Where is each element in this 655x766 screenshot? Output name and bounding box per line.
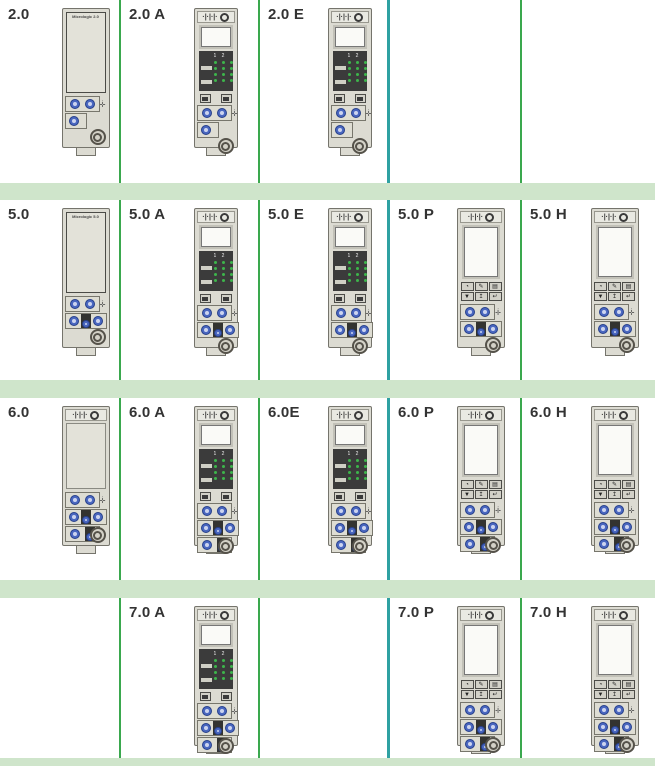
- dial-row-middle: [331, 520, 369, 536]
- dial-row-middle: [197, 520, 235, 536]
- dial-group: [594, 702, 629, 718]
- lamp-test-button: [221, 294, 232, 303]
- led-dot: [230, 79, 233, 82]
- dial-group: [197, 105, 232, 121]
- side-plug-cross: ✛: [629, 311, 635, 317]
- table-cell-5-0-e: 5.0 E·|·|·|·1 2 3·✛: [260, 200, 390, 380]
- mode-switch: [213, 521, 223, 535]
- device-area: ·|·|·|·◔✎▤▼↥↵·✛: [442, 398, 520, 554]
- dial-section: ·✛: [65, 295, 107, 345]
- sensor-ring-icon: [485, 611, 494, 620]
- led-dot: [214, 665, 217, 668]
- mounting-tab: [76, 148, 96, 156]
- control-unit-faceplate: ·|·|·|·1 2 3·✛: [194, 606, 238, 746]
- rotary-dial: [351, 108, 361, 118]
- rotary-dial: [599, 705, 609, 715]
- device-area: ·|·|·|·1 2 3·✛: [312, 200, 387, 356]
- dial-section: ·✛: [65, 95, 107, 145]
- dial-row-middle: [594, 519, 636, 535]
- lcd-screen: [462, 423, 500, 477]
- led-dot: [364, 471, 367, 474]
- side-plug-cross: ✛: [232, 710, 238, 716]
- led-dot: [222, 671, 225, 674]
- control-unit-device: ·|·|·|·1 2 3·✛: [194, 208, 238, 356]
- dial-row-middle: [65, 509, 107, 525]
- device-area: ·|·|·|·◔✎▤▼↥↵·✛: [442, 598, 520, 754]
- lcd-display-area: [598, 425, 632, 475]
- model-label: 5.0 A: [121, 200, 173, 223]
- rotary-dial: [201, 523, 211, 533]
- led-grid: [214, 459, 230, 480]
- led-dot: [214, 279, 217, 282]
- mode-switch: [610, 520, 620, 534]
- rotary-dial: [465, 505, 475, 515]
- mode-switch: [476, 322, 486, 336]
- sensor-ports-glyph: ·|·|·|·: [336, 412, 351, 419]
- rotary-dial: [480, 505, 490, 515]
- dial-section: ·✛: [460, 701, 502, 753]
- led-dot: [356, 267, 359, 270]
- battery-test-button: [200, 692, 211, 701]
- test-button: [90, 129, 106, 145]
- dial-row-top: ·✛: [197, 503, 235, 519]
- table-cell-7-0-a: 7.0 A·|·|·|·1 2 3·✛: [121, 598, 260, 758]
- mode-switch: [476, 520, 486, 534]
- label-chip: [335, 280, 346, 284]
- led-dot: [230, 465, 233, 468]
- test-button: [352, 338, 368, 354]
- rotary-dial: [335, 125, 345, 135]
- nav-button-icon: ▤: [489, 480, 502, 489]
- led-dot: [364, 67, 367, 70]
- selection-table: 2.0Micrologic 2.0·✛2.0 A·|·|·|·1 2 3·✛2.…: [0, 0, 655, 766]
- dial-section: ·✛: [65, 491, 107, 543]
- device-area: ·|·|·|·1 2 3·✛: [173, 200, 258, 356]
- lcd-screen: [333, 423, 367, 447]
- led-dot: [222, 677, 225, 680]
- rotary-dial: [599, 505, 609, 515]
- table-cell-2-0-e: 2.0 E·|·|·|·1 2 3·✛: [260, 0, 390, 183]
- table-cell-empty: [260, 598, 390, 758]
- dial-group: [331, 105, 366, 121]
- rotary-dial: [70, 99, 80, 109]
- dial-row-top: ·✛: [594, 304, 636, 320]
- side-plug-cross: ✛: [232, 312, 238, 318]
- led-dot: [364, 465, 367, 468]
- mode-switch: [213, 323, 223, 337]
- nav-button-icon: ▤: [489, 282, 502, 291]
- table-row: 7.0 A·|·|·|·1 2 3·✛7.0 P·|·|·|·◔✎▤▼↥↵·✛7…: [0, 598, 655, 758]
- device-area: ·|·|·|·1 2 3·✛: [312, 0, 387, 156]
- dial-section: ·✛: [331, 502, 369, 554]
- led-grid: [348, 261, 364, 282]
- rotary-dial: [225, 325, 235, 335]
- rotary-dial: [480, 307, 490, 317]
- led-dot: [356, 79, 359, 82]
- rotary-dial: [82, 516, 90, 524]
- dial-row-middle: [197, 720, 235, 736]
- led-dot: [214, 273, 217, 276]
- dial-group: [197, 503, 232, 519]
- model-label: 5.0 P: [390, 200, 442, 223]
- dial-row-top: ·✛: [594, 702, 636, 718]
- led-dot: [348, 273, 351, 276]
- model-label: 2.0 E: [260, 0, 312, 23]
- table-cell-5-0-a: 5.0 A·|·|·|·1 2 3·✛: [121, 200, 260, 380]
- mode-switch: [81, 314, 91, 328]
- dial-group: [65, 492, 100, 508]
- rotary-dial: [82, 320, 90, 328]
- side-plug-icon: ·✛: [232, 108, 238, 118]
- dial-row-top: ·✛: [65, 296, 107, 312]
- control-unit-device: ·|·|·|·◔✎▤▼↥↵·✛: [591, 606, 639, 754]
- lcd-display-area: [201, 625, 231, 645]
- nav-button-icon: ↥: [608, 490, 621, 499]
- mode-switch: [476, 720, 486, 734]
- rotary-dial: [622, 522, 632, 532]
- nav-button-icon: ↥: [608, 292, 621, 301]
- row-separator-band: [0, 580, 655, 598]
- rotary-dial: [336, 108, 346, 118]
- led-column-labels: 1 2 3: [348, 53, 364, 59]
- model-label: 6.0 P: [390, 398, 442, 421]
- led-indicator-panel: 1 2 3: [333, 251, 367, 291]
- row-separator-band: [0, 758, 655, 766]
- led-dot: [356, 73, 359, 76]
- sensor-ports-icon: ·|·|·|·: [594, 409, 636, 421]
- led-dot: [222, 273, 225, 276]
- lcd-screen: [596, 623, 634, 677]
- sensor-ports-glyph: ·|·|·|·: [202, 214, 217, 221]
- side-plug-icon: ·✛: [629, 505, 635, 515]
- control-unit-device: ·|·|·|·1 2 3·✛: [194, 606, 238, 754]
- rotary-dial: [614, 307, 624, 317]
- led-dot: [214, 67, 217, 70]
- dial-row-top: ·✛: [65, 492, 107, 508]
- dial-section: ·✛: [197, 104, 235, 154]
- table-row: 6.0·|·|·|··✛6.0 A·|·|·|·1 2 3·✛6.0E·|·|·…: [0, 398, 655, 580]
- led-dot: [348, 267, 351, 270]
- rotary-dial: [465, 739, 475, 749]
- rotary-dial: [464, 324, 474, 334]
- dial-group: [331, 305, 366, 321]
- table-cell-5-0: 5.0Micrologic 5.0·✛: [0, 200, 121, 380]
- device-area: ·|·|·|·1 2 3·✛: [173, 598, 258, 754]
- lcd-screen: [199, 225, 233, 249]
- rotary-dial: [488, 722, 498, 732]
- sensor-ring-icon: [354, 13, 363, 22]
- led-dot: [356, 465, 359, 468]
- test-button: [352, 538, 368, 554]
- control-unit-faceplate: ·|·|·|·◔✎▤▼↥↵·✛: [457, 208, 505, 348]
- side-plug-cross: ✛: [629, 509, 635, 515]
- side-plug-icon: ·✛: [366, 506, 372, 516]
- rotary-dial: [351, 506, 361, 516]
- nav-button-icon: ◔: [594, 680, 607, 689]
- dial-group: [594, 519, 636, 535]
- led-dot: [348, 261, 351, 264]
- table-cell-6-0e: 6.0E·|·|·|·1 2 3·✛: [260, 398, 390, 580]
- model-label: [522, 0, 574, 6]
- rotary-dial: [348, 527, 356, 535]
- rotary-dial: [488, 522, 498, 532]
- rotary-dial: [335, 523, 345, 533]
- control-unit-faceplate: ·|·|·|·1 2 3·✛: [328, 8, 372, 148]
- label-chip: [201, 266, 212, 270]
- led-indicator-panel: 1 2 3: [333, 51, 367, 91]
- led-dot: [348, 465, 351, 468]
- table-row: 2.0Micrologic 2.0·✛2.0 A·|·|·|·1 2 3·✛2.…: [0, 0, 655, 183]
- sensor-ports-icon: ·|·|·|·: [197, 609, 235, 621]
- dial-group: [460, 719, 502, 735]
- side-plug-icon: ·✛: [629, 705, 635, 715]
- side-plug-icon: ·✛: [100, 495, 106, 505]
- nav-button-icon: ▼: [461, 690, 474, 699]
- table-cell-empty: [0, 598, 121, 758]
- led-dot: [364, 79, 367, 82]
- nav-button-icon: ◔: [461, 282, 474, 291]
- led-dot: [348, 61, 351, 64]
- device-area: ·|·|·|·◔✎▤▼↥↵·✛: [574, 598, 655, 754]
- table-cell-6-0-p: 6.0 P·|·|·|·◔✎▤▼↥↵·✛: [390, 398, 522, 580]
- led-dot: [222, 267, 225, 270]
- function-button-row: [200, 294, 232, 303]
- led-dot: [230, 261, 233, 264]
- nav-button-icon: ✎: [608, 680, 621, 689]
- led-dot: [364, 459, 367, 462]
- sensor-ring-icon: [619, 411, 628, 420]
- led-column-labels: 1 2 3: [214, 451, 230, 457]
- dial-row-top: ·✛: [65, 96, 107, 112]
- led-indicator-panel: 1 2 3: [199, 51, 233, 91]
- lcd-display-area: [201, 425, 231, 445]
- test-button: [619, 337, 635, 353]
- sensor-ports-glyph: ·|·|·|·: [468, 214, 483, 221]
- navigation-button-grid: ◔✎▤▼↥↵: [594, 680, 636, 699]
- rotary-dial: [488, 324, 498, 334]
- test-button: [90, 329, 106, 345]
- rotary-dial: [359, 523, 369, 533]
- dial-row-middle: [197, 322, 235, 338]
- dial-section: ·✛: [197, 502, 235, 554]
- sensor-ring-icon: [619, 213, 628, 222]
- model-label: 5.0: [0, 200, 52, 223]
- sensor-ports-icon: ·|·|·|·: [460, 211, 502, 223]
- control-unit-faceplate: Micrologic 2.0·✛: [62, 8, 110, 148]
- faceplate-panel: Micrologic 2.0: [66, 12, 106, 93]
- led-dot: [230, 267, 233, 270]
- dial-row-middle: [65, 113, 107, 129]
- rotary-dial: [202, 740, 212, 750]
- table-cell-5-0-p: 5.0 P·|·|·|·◔✎▤▼↥↵·✛: [390, 200, 522, 380]
- model-label: 7.0 A: [121, 598, 173, 621]
- led-dot: [214, 61, 217, 64]
- led-dot: [364, 267, 367, 270]
- nav-button-icon: ✎: [475, 480, 488, 489]
- control-unit-device: ·|·|·|·1 2 3·✛: [194, 8, 238, 156]
- led-dot: [230, 671, 233, 674]
- dial-group: [197, 520, 239, 536]
- function-button-row: [200, 692, 232, 701]
- lcd-screen: [333, 225, 367, 249]
- side-plug-cross: ✛: [100, 499, 106, 505]
- control-unit-device: ·|·|·|·◔✎▤▼↥↵·✛: [591, 208, 639, 356]
- sensor-ports-glyph: ·|·|·|·: [601, 412, 616, 419]
- faceplate-panel: Micrologic 5.0: [66, 212, 106, 293]
- device-area: ·|·|·|·1 2 3·✛: [173, 398, 258, 554]
- function-button-row: [334, 492, 366, 501]
- led-dot: [230, 471, 233, 474]
- led-indicator-panel: 1 2 3: [333, 449, 367, 489]
- dial-group: [594, 304, 629, 320]
- rotary-dial: [85, 299, 95, 309]
- test-button: [619, 737, 635, 753]
- dial-group: [331, 122, 353, 138]
- dial-group: [331, 503, 366, 519]
- led-dot: [348, 79, 351, 82]
- function-button-row: [200, 94, 232, 103]
- sensor-ports-glyph: ·|·|·|·: [601, 612, 616, 619]
- side-plug-cross: ✛: [366, 312, 372, 318]
- dial-row-middle: [594, 321, 636, 337]
- rotary-dial: [214, 329, 222, 337]
- test-button: [218, 538, 234, 554]
- led-dot: [348, 279, 351, 282]
- lcd-screen: [596, 225, 634, 279]
- model-label: 6.0: [0, 398, 52, 421]
- control-unit-device: ·|·|·|·◔✎▤▼↥↵·✛: [457, 406, 505, 554]
- table-cell-5-0-h: 5.0 H·|·|·|·◔✎▤▼↥↵·✛: [522, 200, 655, 380]
- dial-group: [197, 122, 219, 138]
- control-unit-faceplate: ·|·|·|·◔✎▤▼↥↵·✛: [591, 606, 639, 746]
- led-dot: [356, 459, 359, 462]
- dial-group: [197, 720, 239, 736]
- sensor-ports-icon: ·|·|·|·: [594, 211, 636, 223]
- table-cell-6-0: 6.0·|·|·|··✛: [0, 398, 121, 580]
- led-dot: [214, 659, 217, 662]
- rotary-dial: [614, 505, 624, 515]
- rotary-dial: [336, 308, 346, 318]
- test-button: [485, 537, 501, 553]
- device-area: ·|·|·|·1 2 3·✛: [173, 0, 258, 156]
- led-grid: [348, 459, 364, 480]
- dial-row-middle: [331, 122, 369, 138]
- rotary-dial: [622, 324, 632, 334]
- battery-test-button: [334, 94, 345, 103]
- dial-section: ·✛: [197, 702, 235, 754]
- led-dot: [364, 477, 367, 480]
- led-dot: [230, 677, 233, 680]
- sensor-ports-icon: ·|·|·|·: [197, 211, 235, 223]
- sensor-ports-icon: ·|·|·|·: [331, 211, 369, 223]
- dial-row-top: ·✛: [197, 305, 235, 321]
- dial-group: [594, 502, 629, 518]
- sensor-ring-icon: [220, 13, 229, 22]
- table-cell-6-0-h: 6.0 H·|·|·|·◔✎▤▼↥↵·✛: [522, 398, 655, 580]
- side-plug-cross: ✛: [495, 509, 501, 515]
- rotary-dial: [622, 722, 632, 732]
- sensor-ports-icon: ·|·|·|·: [331, 409, 369, 421]
- control-unit-faceplate: ·|·|·|·1 2 3·✛: [328, 406, 372, 546]
- rotary-dial: [201, 325, 211, 335]
- dial-row-top: ·✛: [197, 105, 235, 121]
- led-dot: [230, 61, 233, 64]
- rotary-dial: [85, 495, 95, 505]
- led-dot: [222, 477, 225, 480]
- led-dot: [214, 267, 217, 270]
- led-dot: [222, 261, 225, 264]
- rotary-dial: [201, 723, 211, 733]
- label-chip: [201, 464, 212, 468]
- rotary-dial: [599, 307, 609, 317]
- nav-button-icon: ▤: [622, 282, 635, 291]
- control-unit-device: Micrologic 2.0·✛: [62, 8, 110, 156]
- control-unit-faceplate: ·|·|·|·◔✎▤▼↥↵·✛: [457, 406, 505, 546]
- side-plug-icon: ·✛: [100, 99, 106, 109]
- nav-button-icon: ◔: [461, 480, 474, 489]
- dial-section: ·✛: [331, 304, 369, 354]
- device-area: Micrologic 5.0·✛: [52, 200, 119, 356]
- control-unit-device: ·|·|·|·1 2 3·✛: [328, 8, 372, 156]
- lcd-display-area: [464, 227, 498, 277]
- led-dot: [230, 477, 233, 480]
- rotary-dial: [217, 506, 227, 516]
- model-label: [260, 598, 312, 604]
- battery-test-button: [200, 492, 211, 501]
- dial-row-middle: [460, 719, 502, 735]
- rotary-dial: [93, 512, 103, 522]
- led-grid: [348, 61, 364, 82]
- led-dot: [222, 459, 225, 462]
- dial-group: [65, 296, 100, 312]
- rotary-dial: [611, 726, 619, 734]
- sensor-ports-icon: ·|·|·|·: [594, 609, 636, 621]
- rotary-dial: [214, 727, 222, 735]
- rotary-dial: [348, 329, 356, 337]
- table-cell-6-0-a: 6.0 A·|·|·|·1 2 3·✛: [121, 398, 260, 580]
- led-dot: [348, 471, 351, 474]
- label-chip: [201, 664, 212, 668]
- lcd-screen: [596, 423, 634, 477]
- battery-test-button: [334, 294, 345, 303]
- led-dot: [364, 273, 367, 276]
- rotary-dial: [611, 526, 619, 534]
- sensor-ports-icon: ·|·|·|·: [197, 11, 235, 23]
- control-unit-device: ·|·|·|·1 2 3·✛: [328, 208, 372, 356]
- mode-switch: [81, 510, 91, 524]
- sensor-ring-icon: [354, 411, 363, 420]
- led-dot: [356, 279, 359, 282]
- dial-group: [460, 702, 495, 718]
- led-dot: [348, 73, 351, 76]
- rotary-dial: [464, 722, 474, 732]
- sensor-ring-icon: [485, 411, 494, 420]
- led-dot: [356, 61, 359, 64]
- control-unit-device: ·|·|·|·◔✎▤▼↥↵·✛: [457, 606, 505, 754]
- sensor-ports-glyph: ·|·|·|·: [601, 214, 616, 221]
- test-button: [218, 738, 234, 754]
- rotary-dial: [599, 739, 609, 749]
- mounting-tab: [76, 546, 96, 554]
- control-unit-faceplate: ·|·|·|·◔✎▤▼↥↵·✛: [591, 406, 639, 546]
- battery-test-button: [200, 294, 211, 303]
- led-dot: [214, 477, 217, 480]
- lcd-display-area: [201, 27, 231, 47]
- led-dot: [356, 471, 359, 474]
- led-dot: [230, 459, 233, 462]
- label-chip: [335, 464, 346, 468]
- rotary-dial: [70, 299, 80, 309]
